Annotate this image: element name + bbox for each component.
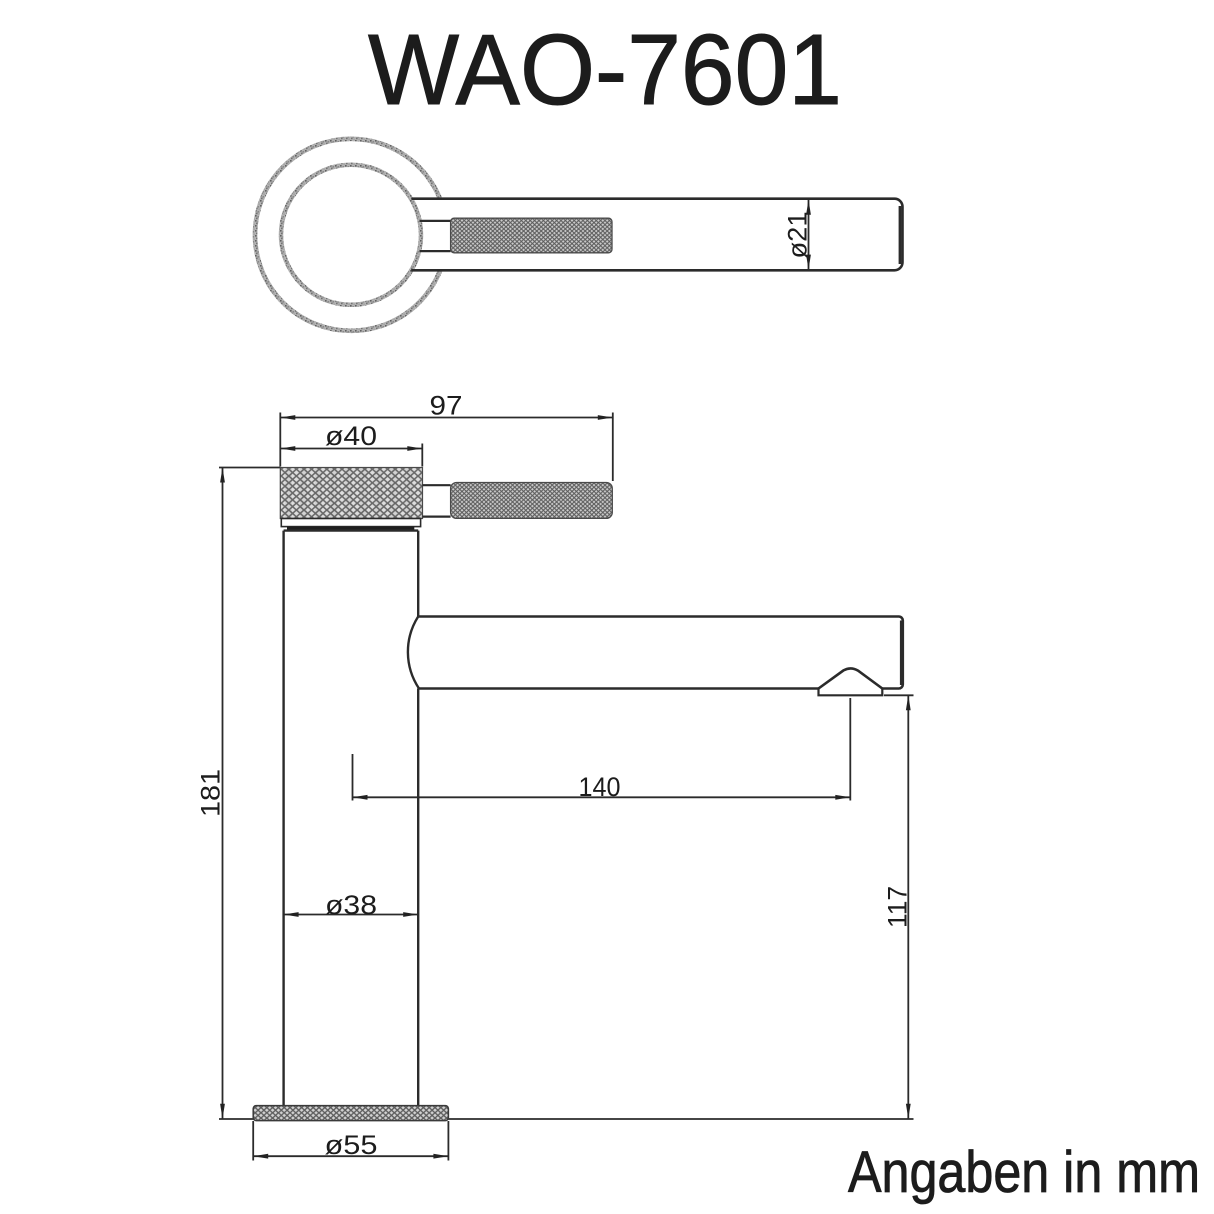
svg-text:140: 140	[579, 772, 621, 802]
svg-text:ø38: ø38	[325, 890, 377, 920]
svg-text:181: 181	[196, 769, 226, 817]
svg-text:Angaben in mm: Angaben in mm	[848, 1140, 1200, 1205]
svg-text:ø21: ø21	[783, 212, 813, 259]
svg-text:97: 97	[430, 391, 463, 421]
svg-text:117: 117	[882, 886, 912, 928]
svg-text:ø55: ø55	[325, 1130, 378, 1160]
svg-text:ø40: ø40	[325, 421, 377, 451]
svg-text:WAO-7601: WAO-7601	[368, 14, 842, 126]
